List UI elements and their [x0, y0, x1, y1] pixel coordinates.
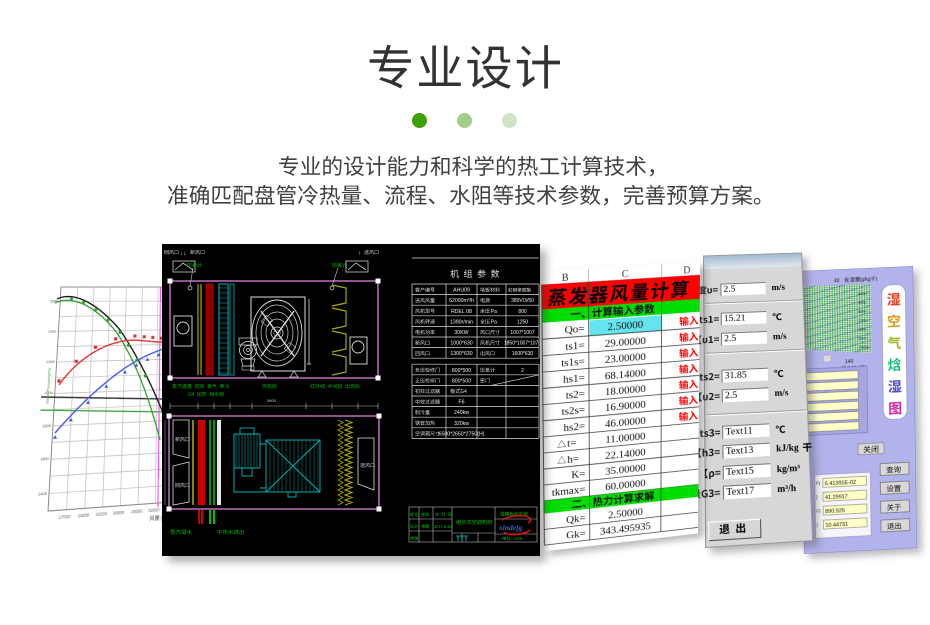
svg-text:3600: 3600 [267, 398, 277, 403]
svg-text:1850*1007*1070: 1850*1007*1070 [504, 341, 540, 347]
svg-text:52000m³/h: 52000m³/h [449, 298, 474, 304]
svg-text:1000*630: 1000*630 [450, 341, 472, 347]
svg-text:hs2=: hs2= [563, 419, 585, 433]
svg-text:F): F) [816, 508, 821, 513]
svg-text:2200: 2200 [46, 360, 55, 365]
svg-text:24000: 24000 [78, 513, 90, 519]
svg-text:Pa: Pa [491, 319, 497, 325]
svg-text:45000: 45000 [131, 509, 142, 515]
svg-text:41.29917: 41.29917 [825, 494, 848, 501]
svg-text:1600: 1600 [40, 456, 49, 461]
svg-text:50%: 50% [858, 300, 866, 305]
svg-text:100%: 100% [859, 344, 870, 349]
svg-text:70%: 70% [858, 318, 866, 323]
svg-text:2: 2 [521, 368, 524, 374]
svg-text:ts1s=: ts1s= [561, 355, 585, 370]
svg-text:D: D [683, 265, 690, 276]
svg-text:380V/3/50: 380V/3/50 [511, 298, 534, 304]
svg-text:ts2=: ts2= [566, 387, 585, 401]
svg-text:240kw: 240kw [454, 410, 469, 416]
svg-text:90%: 90% [859, 335, 867, 340]
svg-text:RDEL 08: RDEL 08 [451, 309, 472, 315]
svg-text:ts2s=: ts2s= [561, 403, 585, 418]
svg-text:↑: ↑ [358, 251, 361, 257]
svg-text:C: C [622, 269, 629, 280]
svg-text:80%: 80% [858, 327, 866, 332]
svg-text:t=: t= [567, 436, 577, 449]
svg-text:890.925: 890.925 [825, 508, 845, 515]
svg-text:40%: 40% [858, 291, 866, 296]
svg-text:40: 40 [834, 278, 840, 284]
svg-text:1300*630: 1300*630 [450, 351, 472, 357]
svg-text:↓↓: ↓↓ [180, 251, 186, 257]
svg-text:hs1=: hs1= [563, 371, 585, 385]
svg-text:h=: h= [567, 452, 579, 466]
svg-text:2600: 2600 [50, 299, 59, 303]
svg-text:800*500: 800*500 [452, 378, 471, 384]
svg-text:Gk=: Gk= [566, 527, 586, 541]
svg-text:AHU09: AHU09 [453, 288, 470, 294]
svg-text:B: B [562, 272, 569, 283]
svg-text:10.44731: 10.44731 [825, 522, 848, 529]
svg-text:140: 140 [845, 359, 854, 365]
svg-text:38000: 38000 [113, 510, 124, 516]
svg-text:K=: K= [571, 467, 585, 481]
svg-text:1800: 1800 [42, 423, 51, 428]
svg-text:2400: 2400 [48, 329, 57, 333]
svg-text:(g/kg: (g/kg [860, 277, 871, 283]
svg-text:1007*1007: 1007*1007 [510, 330, 534, 336]
svg-text:31000: 31000 [95, 512, 107, 518]
svg-text:800*500: 800*500 [452, 368, 471, 374]
svg-text:2.50000: 2.50000 [607, 318, 643, 333]
svg-text:800: 800 [518, 309, 527, 315]
svg-text:1400: 1400 [38, 491, 47, 497]
svg-text:17000: 17000 [59, 514, 71, 520]
svg-text:1250: 1250 [517, 319, 528, 325]
svg-text:F6: F6 [458, 400, 464, 406]
svg-text:30KW: 30KW [454, 330, 468, 336]
svg-text:Pa: Pa [491, 309, 497, 315]
svg-text:xindefg: xindefg [498, 523, 523, 532]
svg-text:60%: 60% [858, 309, 866, 314]
svg-text:320kw: 320kw [454, 421, 469, 427]
svg-text:Qo=: Qo= [565, 322, 585, 336]
svg-text:52000: 52000 [148, 508, 159, 514]
svg-text:ts1=: ts1= [565, 338, 585, 352]
svg-text:6500*2650*2750(H): 6500*2650*2750(H) [439, 431, 485, 437]
svg-text:1600*630: 1600*630 [512, 351, 534, 357]
svg-text:Qk=: Qk= [566, 511, 586, 525]
svg-text:F): F) [816, 481, 821, 486]
svg-text:1390r/min: 1390r/min [450, 319, 473, 325]
